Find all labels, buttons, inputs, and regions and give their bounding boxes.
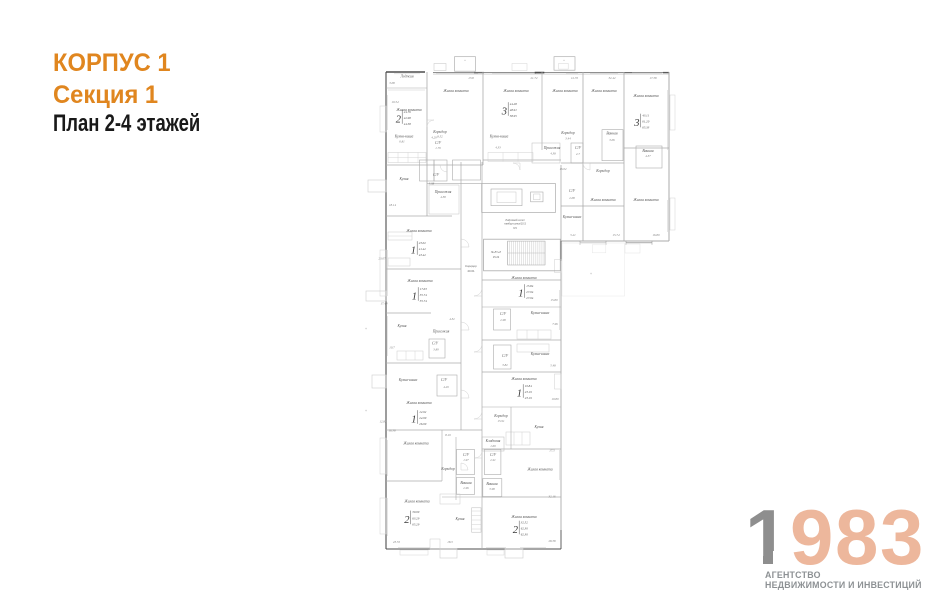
svg-text:Ванная: Ванная (486, 482, 498, 486)
svg-text:9.5: 9.5 (513, 226, 517, 230)
svg-text:Кухня: Кухня (454, 517, 464, 521)
svg-text:15.84: 15.84 (526, 284, 533, 288)
svg-text:3.44: 3.44 (565, 137, 571, 141)
svg-text:1: 1 (412, 292, 417, 303)
svg-text:Жилая комната: Жилая комната (510, 515, 536, 519)
svg-text:7.96: 7.96 (552, 322, 558, 326)
svg-text:+: + (464, 58, 466, 62)
svg-text:3.89: 3.89 (433, 348, 439, 352)
svg-text:8.19: 8.19 (445, 433, 451, 437)
svg-text:15.89: 15.89 (550, 298, 557, 302)
svg-text:С/У: С/У (575, 146, 581, 150)
svg-text:10.89: 10.89 (551, 397, 558, 401)
svg-text:С/У: С/У (569, 189, 575, 193)
svg-text:4.29: 4.29 (431, 136, 437, 140)
svg-text:16.38: 16.38 (388, 429, 395, 433)
svg-text:23.55: 23.55 (393, 540, 400, 544)
svg-text:Прихожая: Прихожая (434, 190, 452, 194)
svg-text:Кухня-ниша: Кухня-ниша (530, 352, 550, 356)
svg-text:61.20: 61.20 (642, 120, 649, 124)
svg-text:Коридор: Коридор (440, 467, 455, 471)
svg-text:48.91: 48.91 (510, 108, 517, 112)
svg-text:10.7: 10.7 (389, 346, 395, 350)
svg-text:23.19: 23.19 (525, 390, 532, 394)
svg-text:58.95: 58.95 (510, 114, 517, 118)
svg-text:17.63: 17.63 (420, 287, 427, 291)
svg-text:Коридор: Коридор (432, 130, 447, 134)
svg-text:43.42: 43.42 (419, 253, 426, 257)
svg-text:Жилая комната: Жилая комната (590, 89, 616, 93)
svg-text:Коридор: Коридор (465, 264, 477, 268)
svg-text:27.04: 27.04 (526, 290, 533, 294)
svg-text:Кухня: Кухня (533, 425, 543, 429)
svg-text:35.74: 35.74 (420, 293, 427, 297)
svg-text:С/У: С/У (502, 354, 508, 358)
svg-text:Кухня-ниша: Кухня-ниша (398, 378, 418, 382)
svg-text:Лк-ЛУ+Л: Лк-ЛУ+Л (491, 250, 502, 254)
svg-text:26.99: 26.99 (419, 422, 426, 426)
svg-text:16.02: 16.02 (559, 167, 566, 171)
svg-text:Жилая комната: Жилая комната (632, 94, 658, 98)
svg-text:Кухня-ниша: Кухня-ниша (530, 311, 550, 315)
svg-text:23.19: 23.19 (525, 396, 532, 400)
svg-text:28.38: 28.38 (548, 539, 555, 543)
svg-text:17.38: 17.38 (649, 76, 656, 80)
svg-text:Жилая комната: Жилая комната (406, 279, 432, 283)
svg-text:Прихожая: Прихожая (432, 330, 450, 334)
svg-text:1.97: 1.97 (463, 458, 469, 462)
svg-text:10.34: 10.34 (391, 100, 398, 104)
svg-text:23.07: 23.07 (378, 257, 385, 261)
svg-text:Жилая комната: Жилая комната (403, 500, 429, 504)
svg-text:Кухня-ниша: Кухня-ниша (562, 215, 582, 219)
svg-text:Жилая комната: Жилая комната (405, 229, 431, 233)
svg-text:43.11: 43.11 (642, 113, 649, 117)
svg-text:5.21: 5.21 (570, 233, 576, 237)
svg-text:Жилая комната: Жилая комната (405, 401, 431, 405)
svg-text:Жилая комната: Жилая комната (402, 442, 428, 446)
svg-text:2: 2 (404, 515, 410, 526)
svg-text:23.02: 23.02 (419, 241, 426, 245)
svg-text:4.33: 4.33 (495, 146, 501, 150)
svg-text:13.8: 13.8 (468, 76, 474, 80)
svg-text:+: + (563, 58, 565, 62)
svg-text:24.99: 24.99 (419, 416, 426, 420)
svg-text:2.91: 2.91 (490, 458, 496, 462)
svg-text:3.98: 3.98 (489, 487, 495, 491)
svg-text:Ванная: Ванная (606, 132, 618, 136)
svg-text:Жилая комната: Жилая комната (502, 89, 528, 93)
svg-text:Коридор: Коридор (560, 131, 575, 135)
svg-text:+: + (590, 272, 592, 276)
svg-text:65.33: 65.33 (642, 126, 649, 130)
svg-text:16.89: 16.89 (652, 233, 659, 237)
svg-text:4.38: 4.38 (550, 152, 556, 156)
svg-text:3.06: 3.06 (609, 138, 615, 142)
svg-text:3.08: 3.08 (429, 182, 435, 186)
svg-text:+: + (365, 327, 367, 331)
svg-text:44.58: 44.58 (404, 122, 411, 126)
svg-text:Ванная: Ванная (642, 149, 654, 153)
svg-text:Прихожая: Прихожая (543, 146, 561, 150)
svg-text:Коридор: Коридор (595, 169, 610, 173)
svg-text:Жилая комната: Жилая комната (632, 198, 658, 202)
svg-text:62.30: 62.30 (521, 533, 528, 537)
svg-text:27.04: 27.04 (526, 296, 533, 300)
svg-text:Жилая комната: Жилая комната (526, 468, 552, 472)
svg-text:8.52: 8.52 (437, 135, 443, 139)
svg-text:2: 2 (513, 525, 519, 536)
svg-text:32.52: 32.52 (521, 520, 528, 524)
svg-text:тамбур-шлюз/10.5: тамбур-шлюз/10.5 (504, 222, 526, 226)
svg-text:Жилая комната: Жилая комната (510, 377, 536, 381)
svg-text:35.74: 35.74 (420, 299, 427, 303)
svg-text:32.16: 32.16 (548, 495, 555, 499)
svg-text:1: 1 (518, 289, 523, 300)
svg-text:+: + (365, 409, 367, 413)
svg-text:Лифтовой холл/: Лифтовой холл/ (505, 218, 524, 222)
svg-text:32.42: 32.42 (608, 76, 615, 80)
svg-text:С/У: С/У (490, 453, 496, 457)
svg-text:4.38: 4.38 (440, 195, 446, 199)
svg-text:3.08: 3.08 (389, 81, 395, 85)
svg-text:12.35: 12.35 (571, 76, 578, 80)
svg-text:10.84: 10.84 (525, 384, 532, 388)
svg-text:12.82: 12.82 (379, 420, 386, 424)
svg-text:С/У: С/У (432, 342, 438, 346)
svg-text:65.29: 65.29 (412, 523, 419, 527)
svg-text:42.98: 42.98 (404, 116, 411, 120)
svg-text:1.60: 1.60 (490, 444, 496, 448)
svg-text:Кухня: Кухня (398, 177, 408, 181)
svg-text:Жилая комната: Жилая комната (589, 198, 615, 202)
svg-text:40.61: 40.61 (467, 269, 475, 273)
svg-text:Коридор: Коридор (493, 414, 508, 418)
svg-text:С/У: С/У (435, 141, 441, 145)
svg-text:24.76: 24.76 (404, 110, 411, 114)
svg-text:41.42: 41.42 (419, 247, 426, 251)
svg-text:4.29: 4.29 (443, 385, 449, 389)
svg-text:Ванная: Ванная (460, 481, 472, 485)
svg-text:1.79: 1.79 (435, 146, 441, 150)
svg-text:15.91: 15.91 (497, 419, 504, 423)
svg-text:6.81: 6.81 (399, 140, 405, 144)
svg-text:1: 1 (411, 415, 416, 426)
svg-text:С/У: С/У (500, 312, 506, 316)
svg-text:4.37: 4.37 (645, 154, 651, 158)
svg-text:44.28: 44.28 (510, 102, 517, 106)
svg-text:Кухня-ниша: Кухня-ниша (394, 135, 414, 139)
svg-text:Жилая комната: Жилая комната (510, 276, 536, 280)
svg-text:15.74: 15.74 (612, 233, 619, 237)
svg-text:5.48: 5.48 (550, 364, 556, 368)
svg-text:3: 3 (633, 118, 639, 129)
svg-text:2.98: 2.98 (500, 318, 506, 322)
svg-text:17.5: 17.5 (549, 449, 555, 453)
svg-text:3.82: 3.82 (502, 363, 508, 367)
svg-text:Кладовая: Кладовая (485, 439, 501, 443)
svg-text:С/У: С/У (433, 173, 439, 177)
svg-text:1: 1 (517, 389, 522, 400)
svg-text:С/У: С/У (441, 378, 447, 382)
svg-text:63.29: 63.29 (412, 516, 419, 520)
svg-text:Кухня: Кухня (396, 324, 406, 328)
svg-text:62.30: 62.30 (521, 527, 528, 531)
svg-text:15.22: 15.22 (493, 255, 500, 259)
svg-text:21.72: 21.72 (530, 76, 537, 80)
svg-text:Лоджия: Лоджия (399, 75, 413, 79)
svg-text:17.43: 17.43 (380, 302, 387, 306)
svg-text:3: 3 (501, 107, 507, 118)
svg-text:2.08: 2.08 (569, 196, 575, 200)
svg-text:2.7: 2.7 (576, 152, 580, 156)
svg-text:2: 2 (396, 115, 402, 126)
svg-text:Жилая комната: Жилая комната (442, 89, 468, 93)
svg-text:1: 1 (411, 246, 416, 257)
svg-text:30.09: 30.09 (412, 510, 419, 514)
svg-text:2.96: 2.96 (463, 486, 469, 490)
svg-text:С/У: С/У (463, 453, 469, 457)
svg-text:Жилая комната: Жилая комната (551, 89, 577, 93)
svg-text:18.3: 18.3 (447, 540, 453, 544)
svg-text:4.32: 4.32 (449, 317, 455, 321)
svg-text:12.02: 12.02 (419, 410, 426, 414)
svg-text:Кухня-ниша: Кухня-ниша (489, 135, 509, 139)
svg-text:18.14: 18.14 (389, 203, 396, 207)
